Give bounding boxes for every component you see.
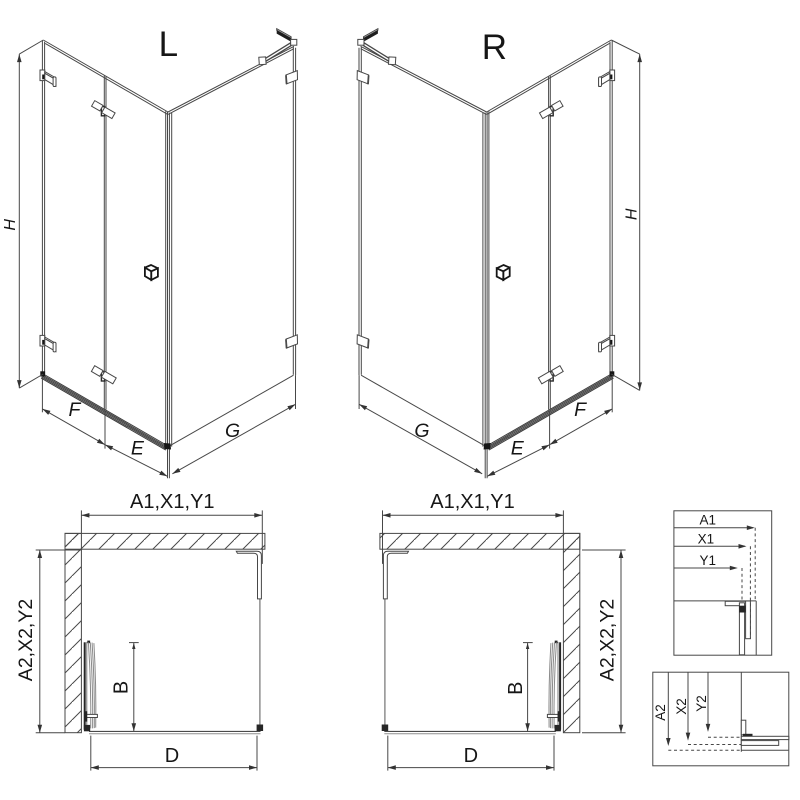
svg-text:F: F [574,399,587,421]
svg-text:X1: X1 [698,531,715,546]
svg-text:A2,X2,Y2: A2,X2,Y2 [597,599,619,681]
svg-text:A2,X2,Y2: A2,X2,Y2 [15,599,37,681]
svg-text:A1,X1,Y1: A1,X1,Y1 [430,491,515,513]
svg-text:A2: A2 [653,704,668,721]
svg-text:H: H [624,208,641,220]
svg-text:L: L [159,25,178,64]
svg-text:B: B [505,682,527,695]
svg-text:H: H [2,219,19,231]
svg-text:D: D [165,745,179,767]
svg-text:G: G [414,420,429,442]
svg-text:A1,X1,Y1: A1,X1,Y1 [130,491,215,513]
svg-text:B: B [111,681,133,694]
svg-text:D: D [464,745,478,767]
svg-text:Y2: Y2 [694,695,709,712]
svg-text:A1: A1 [700,513,717,528]
svg-text:F: F [69,399,82,421]
svg-text:R: R [482,28,507,67]
svg-text:Y1: Y1 [700,553,717,568]
svg-text:E: E [131,438,145,460]
svg-text:X2: X2 [674,698,689,715]
svg-text:E: E [511,438,525,460]
svg-text:G: G [225,420,240,442]
